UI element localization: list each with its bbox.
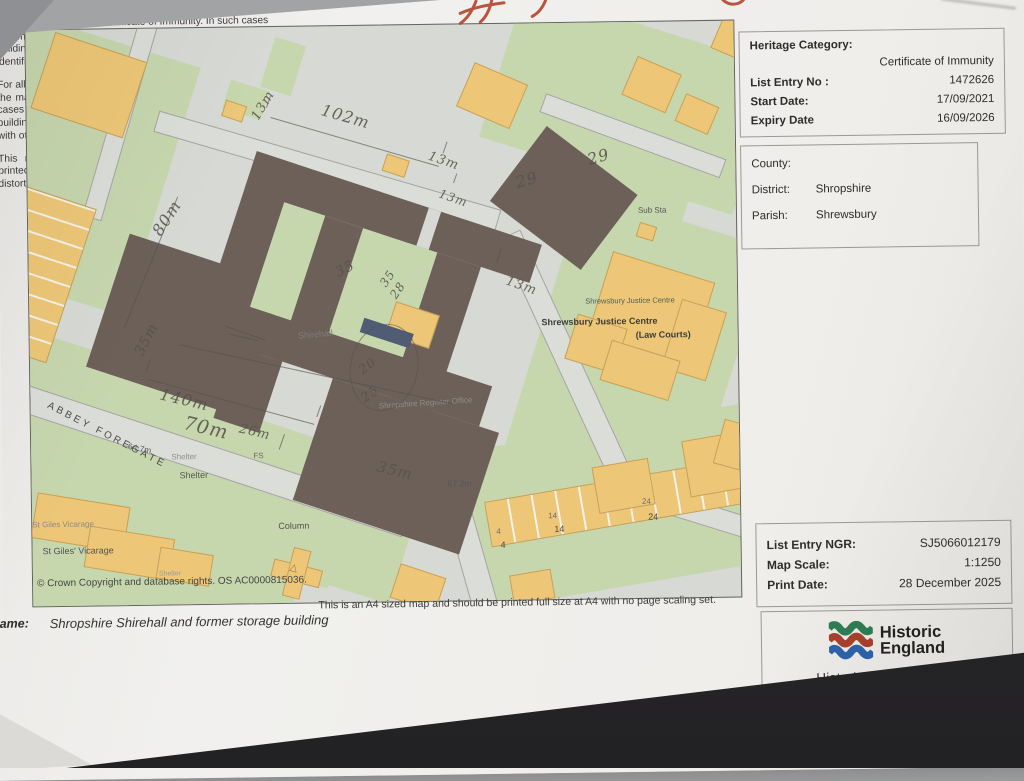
pencil-annotation: 13m xyxy=(426,149,461,174)
info-row: Parish:Shrewsbury xyxy=(752,207,968,222)
info-value: SJ5066012179 xyxy=(920,535,1001,550)
heritage-category-box: Heritage Category: Certificate of Immuni… xyxy=(738,28,1005,138)
info-value: Shropshire xyxy=(816,183,872,196)
info-row: Map Scale:1:1250 xyxy=(767,555,1001,572)
map-label: 14 xyxy=(548,511,557,520)
green-area xyxy=(260,37,306,96)
pencil-smudge xyxy=(941,0,1016,10)
logo-wordmark: Historic England xyxy=(880,623,946,657)
info-label: Start Date: xyxy=(750,96,808,109)
info-label: County: xyxy=(751,157,815,170)
info-value: Shrewsbury xyxy=(816,209,877,222)
info-row: Start Date:17/09/2021 xyxy=(750,93,994,108)
site-name: Shropshire Shirehall and former storage … xyxy=(50,612,329,631)
info-value: 28 December 2025 xyxy=(899,575,1001,590)
info-value: 1:1250 xyxy=(964,555,1001,570)
print-info-box: List Entry NGR:SJ5066012179Map Scale:1:1… xyxy=(755,520,1012,608)
info-row: Print Date:28 December 2025 xyxy=(767,575,1001,592)
pencil-tick xyxy=(443,142,448,154)
logo-line2: England xyxy=(880,640,945,657)
location-rows: County:District:ShropshireParish:Shrewsb… xyxy=(751,155,968,222)
pencil-annotation: 102m xyxy=(319,100,372,132)
info-label: List Entry NGR: xyxy=(767,537,857,552)
info-row: Expiry Date16/09/2026 xyxy=(751,112,995,127)
map-label: St Giles Vicarage xyxy=(32,520,94,530)
map-label: Shrewsbury Justice Centre xyxy=(585,295,675,305)
print-info-rows: List Entry NGR:SJ5066012179Map Scale:1:1… xyxy=(767,535,1002,592)
map-label: 67.2m xyxy=(448,478,472,488)
map-label: Shelter xyxy=(171,452,196,461)
info-label: Parish: xyxy=(752,209,816,222)
info-value: 16/09/2026 xyxy=(937,112,995,125)
map-label: 14 xyxy=(554,524,564,534)
map-label: 4 xyxy=(496,527,501,536)
info-row: List Entry NGR:SJ5066012179 xyxy=(767,535,1001,552)
map-label: (Law Courts) xyxy=(636,329,691,340)
map-label: FS xyxy=(253,451,263,460)
info-row: County: xyxy=(751,155,967,170)
os-map: △ xyxy=(24,20,742,608)
info-row: District:Shropshire xyxy=(752,181,968,196)
map-label: 24 xyxy=(642,497,651,506)
map-label: St Giles' Vicarage xyxy=(43,545,114,556)
red-ink-handwriting xyxy=(426,0,806,28)
wave-logo-icon xyxy=(829,621,874,662)
location-box: County:District:ShropshireParish:Shrewsb… xyxy=(740,142,979,249)
map-label: 24 xyxy=(648,512,658,522)
info-label: Map Scale: xyxy=(767,557,830,572)
historic-england-logo: Historic England xyxy=(762,619,1013,662)
map-label: Shrewsbury Justice Centre xyxy=(541,316,657,328)
info-label: Expiry Date xyxy=(751,114,814,127)
printed-document-paper: △ xyxy=(0,0,1024,781)
heritage-category-value: Certificate of Immunity xyxy=(750,55,994,70)
map-label: 4 xyxy=(501,540,506,550)
info-row: List Entry No :1472626 xyxy=(750,74,994,89)
name-label: Name: xyxy=(0,616,29,631)
map-label: Shelter xyxy=(180,470,209,480)
page-content: △ xyxy=(0,0,1024,774)
info-value: 1472626 xyxy=(949,74,994,87)
info-label: List Entry No : xyxy=(750,76,829,89)
heritage-category-label: Heritage Category: xyxy=(750,37,994,52)
info-label: District: xyxy=(752,183,816,196)
heritage-rows: List Entry No :1472626Start Date:17/09/2… xyxy=(750,74,995,127)
map-label: Column xyxy=(278,521,309,531)
info-value: 17/09/2021 xyxy=(937,93,995,106)
map-label: Sub Sta xyxy=(638,206,667,215)
pencil-tick xyxy=(453,173,457,183)
info-label: Print Date: xyxy=(767,577,828,592)
